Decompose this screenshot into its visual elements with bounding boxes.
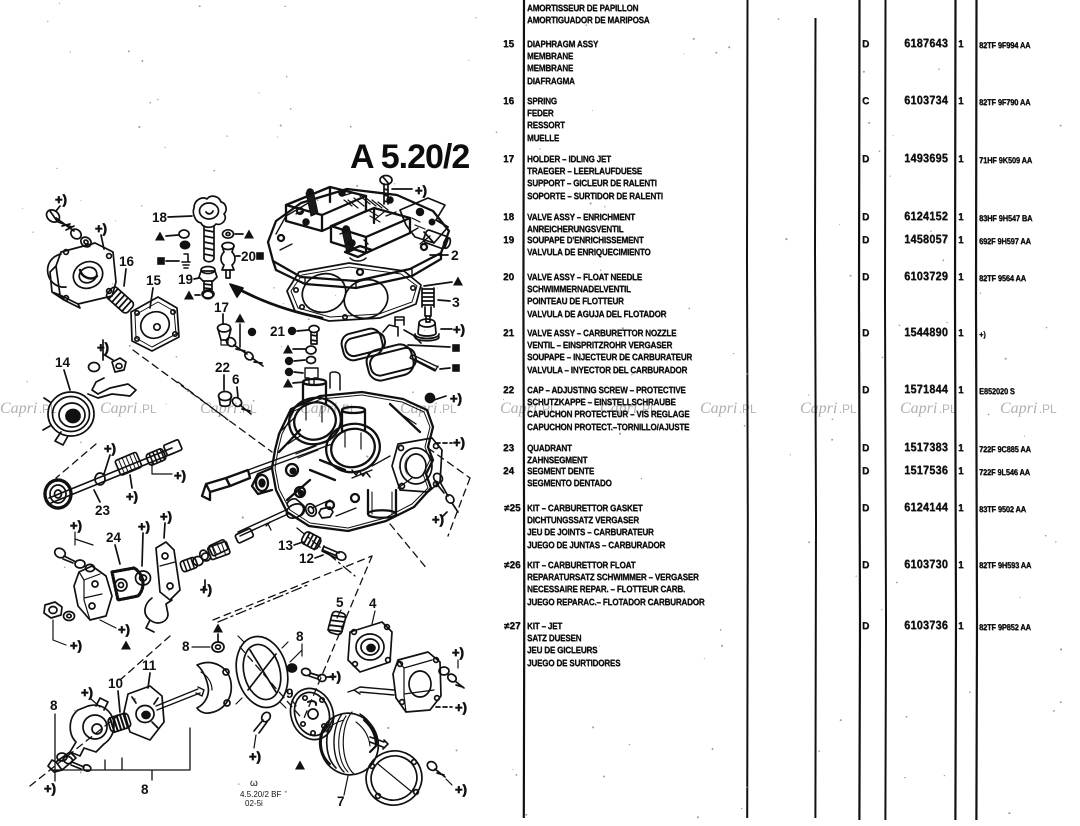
svg-text:4.5.20/2 BF: 4.5.20/2 BF [240, 790, 281, 799]
svg-text:16: 16 [119, 254, 135, 269]
svg-text:24: 24 [106, 530, 122, 545]
svg-text:8: 8 [296, 629, 304, 644]
svg-text:8: 8 [141, 782, 149, 797]
svg-text:23: 23 [95, 503, 111, 518]
svg-text:ω: ω [250, 778, 258, 789]
svg-text:8: 8 [50, 698, 58, 713]
svg-text:A 5.20/2: A 5.20/2 [350, 138, 469, 176]
svg-text:3: 3 [452, 294, 460, 310]
svg-text:18: 18 [152, 210, 168, 225]
svg-text:11: 11 [142, 658, 157, 673]
svg-text:6: 6 [232, 372, 240, 387]
svg-text:21: 21 [270, 324, 286, 339]
svg-text:22: 22 [215, 360, 230, 375]
svg-text:5: 5 [336, 595, 344, 610]
svg-text:13: 13 [278, 538, 294, 553]
svg-text:2: 2 [451, 247, 459, 263]
svg-text:10: 10 [108, 676, 123, 691]
svg-text:4: 4 [369, 596, 377, 611]
svg-text:19: 19 [178, 272, 193, 287]
svg-text:14: 14 [55, 355, 71, 370]
svg-text:7: 7 [337, 794, 345, 809]
svg-text:8: 8 [182, 639, 190, 654]
svg-text:02-5i: 02-5i [245, 799, 263, 808]
svg-text:20: 20 [241, 249, 256, 264]
svg-text:17: 17 [214, 300, 229, 315]
svg-text:15: 15 [146, 273, 162, 288]
svg-text:12: 12 [299, 551, 314, 566]
